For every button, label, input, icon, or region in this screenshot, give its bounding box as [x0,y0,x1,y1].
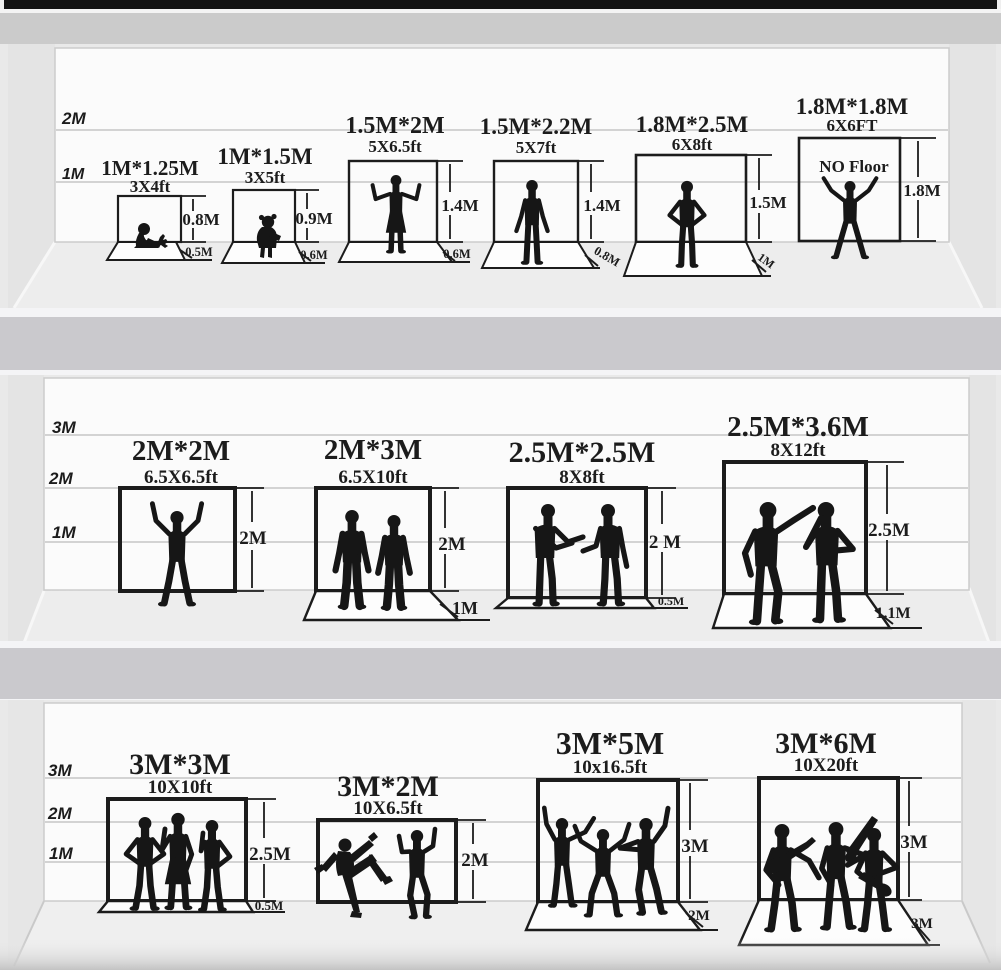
svg-text:1.5M: 1.5M [749,193,786,212]
svg-text:1.4M: 1.4M [441,196,478,215]
svg-text:2.5M*2.5M: 2.5M*2.5M [509,436,656,469]
svg-text:1.1M: 1.1M [875,605,910,622]
svg-text:3X5ft: 3X5ft [245,168,286,187]
svg-text:NO Floor: NO Floor [819,157,889,176]
svg-text:1.5M*2.2M: 1.5M*2.2M [480,114,593,139]
svg-text:0.6M: 0.6M [443,247,471,261]
svg-text:2 M: 2 M [649,532,681,553]
svg-text:1M: 1M [49,844,73,863]
svg-text:3X4ft: 3X4ft [130,177,171,196]
svg-text:3M: 3M [681,836,709,857]
svg-text:5X6.5ft: 5X6.5ft [368,137,422,156]
svg-text:3M: 3M [48,761,72,780]
svg-text:2M: 2M [48,469,73,488]
svg-text:2M: 2M [47,804,72,823]
svg-text:2.5M*3.6M: 2.5M*3.6M [727,411,869,443]
svg-text:1.8M: 1.8M [903,181,940,200]
svg-text:2M: 2M [688,908,710,924]
svg-text:1M*1.5M: 1M*1.5M [217,144,312,169]
svg-text:8X8ft: 8X8ft [559,467,605,488]
svg-text:10x16.5ft: 10x16.5ft [573,757,648,778]
svg-text:2M*3M: 2M*3M [324,434,422,466]
svg-text:6.5X10ft: 6.5X10ft [338,467,408,488]
svg-text:1M: 1M [52,523,76,542]
svg-text:6.5X6.5ft: 6.5X6.5ft [144,467,219,488]
svg-text:10X6.5ft: 10X6.5ft [353,798,423,819]
svg-text:0.5M: 0.5M [658,594,684,608]
svg-text:2M: 2M [239,528,267,549]
svg-text:3M: 3M [911,916,933,932]
svg-text:2M: 2M [461,850,489,871]
svg-text:0.9M: 0.9M [295,209,332,228]
svg-text:0.6M: 0.6M [300,248,328,262]
svg-text:1.5M*2M: 1.5M*2M [345,113,444,139]
svg-text:3M: 3M [52,418,76,437]
svg-text:1.8M*2.5M: 1.8M*2.5M [636,112,749,137]
svg-text:8X12ft: 8X12ft [771,440,827,461]
svg-text:2.5M: 2.5M [249,844,291,865]
svg-text:10X20ft: 10X20ft [794,755,859,776]
svg-text:0.5M: 0.5M [255,898,284,913]
svg-text:0.8M: 0.8M [182,210,219,229]
svg-text:3M*5M: 3M*5M [556,725,664,761]
svg-text:2.5M: 2.5M [868,520,910,541]
svg-text:2M: 2M [438,534,466,555]
svg-text:1M: 1M [452,598,478,618]
svg-text:10X10ft: 10X10ft [148,777,213,798]
svg-text:5X7ft: 5X7ft [516,138,557,157]
svg-text:2M: 2M [61,109,86,128]
svg-text:3M: 3M [900,832,928,853]
svg-text:6X8ft: 6X8ft [672,135,713,154]
svg-text:2M*2M: 2M*2M [132,435,230,467]
svg-text:6X6FT: 6X6FT [827,116,879,135]
svg-text:1M: 1M [62,166,85,183]
svg-text:0.5M: 0.5M [185,245,213,259]
svg-text:1.4M: 1.4M [583,196,620,215]
